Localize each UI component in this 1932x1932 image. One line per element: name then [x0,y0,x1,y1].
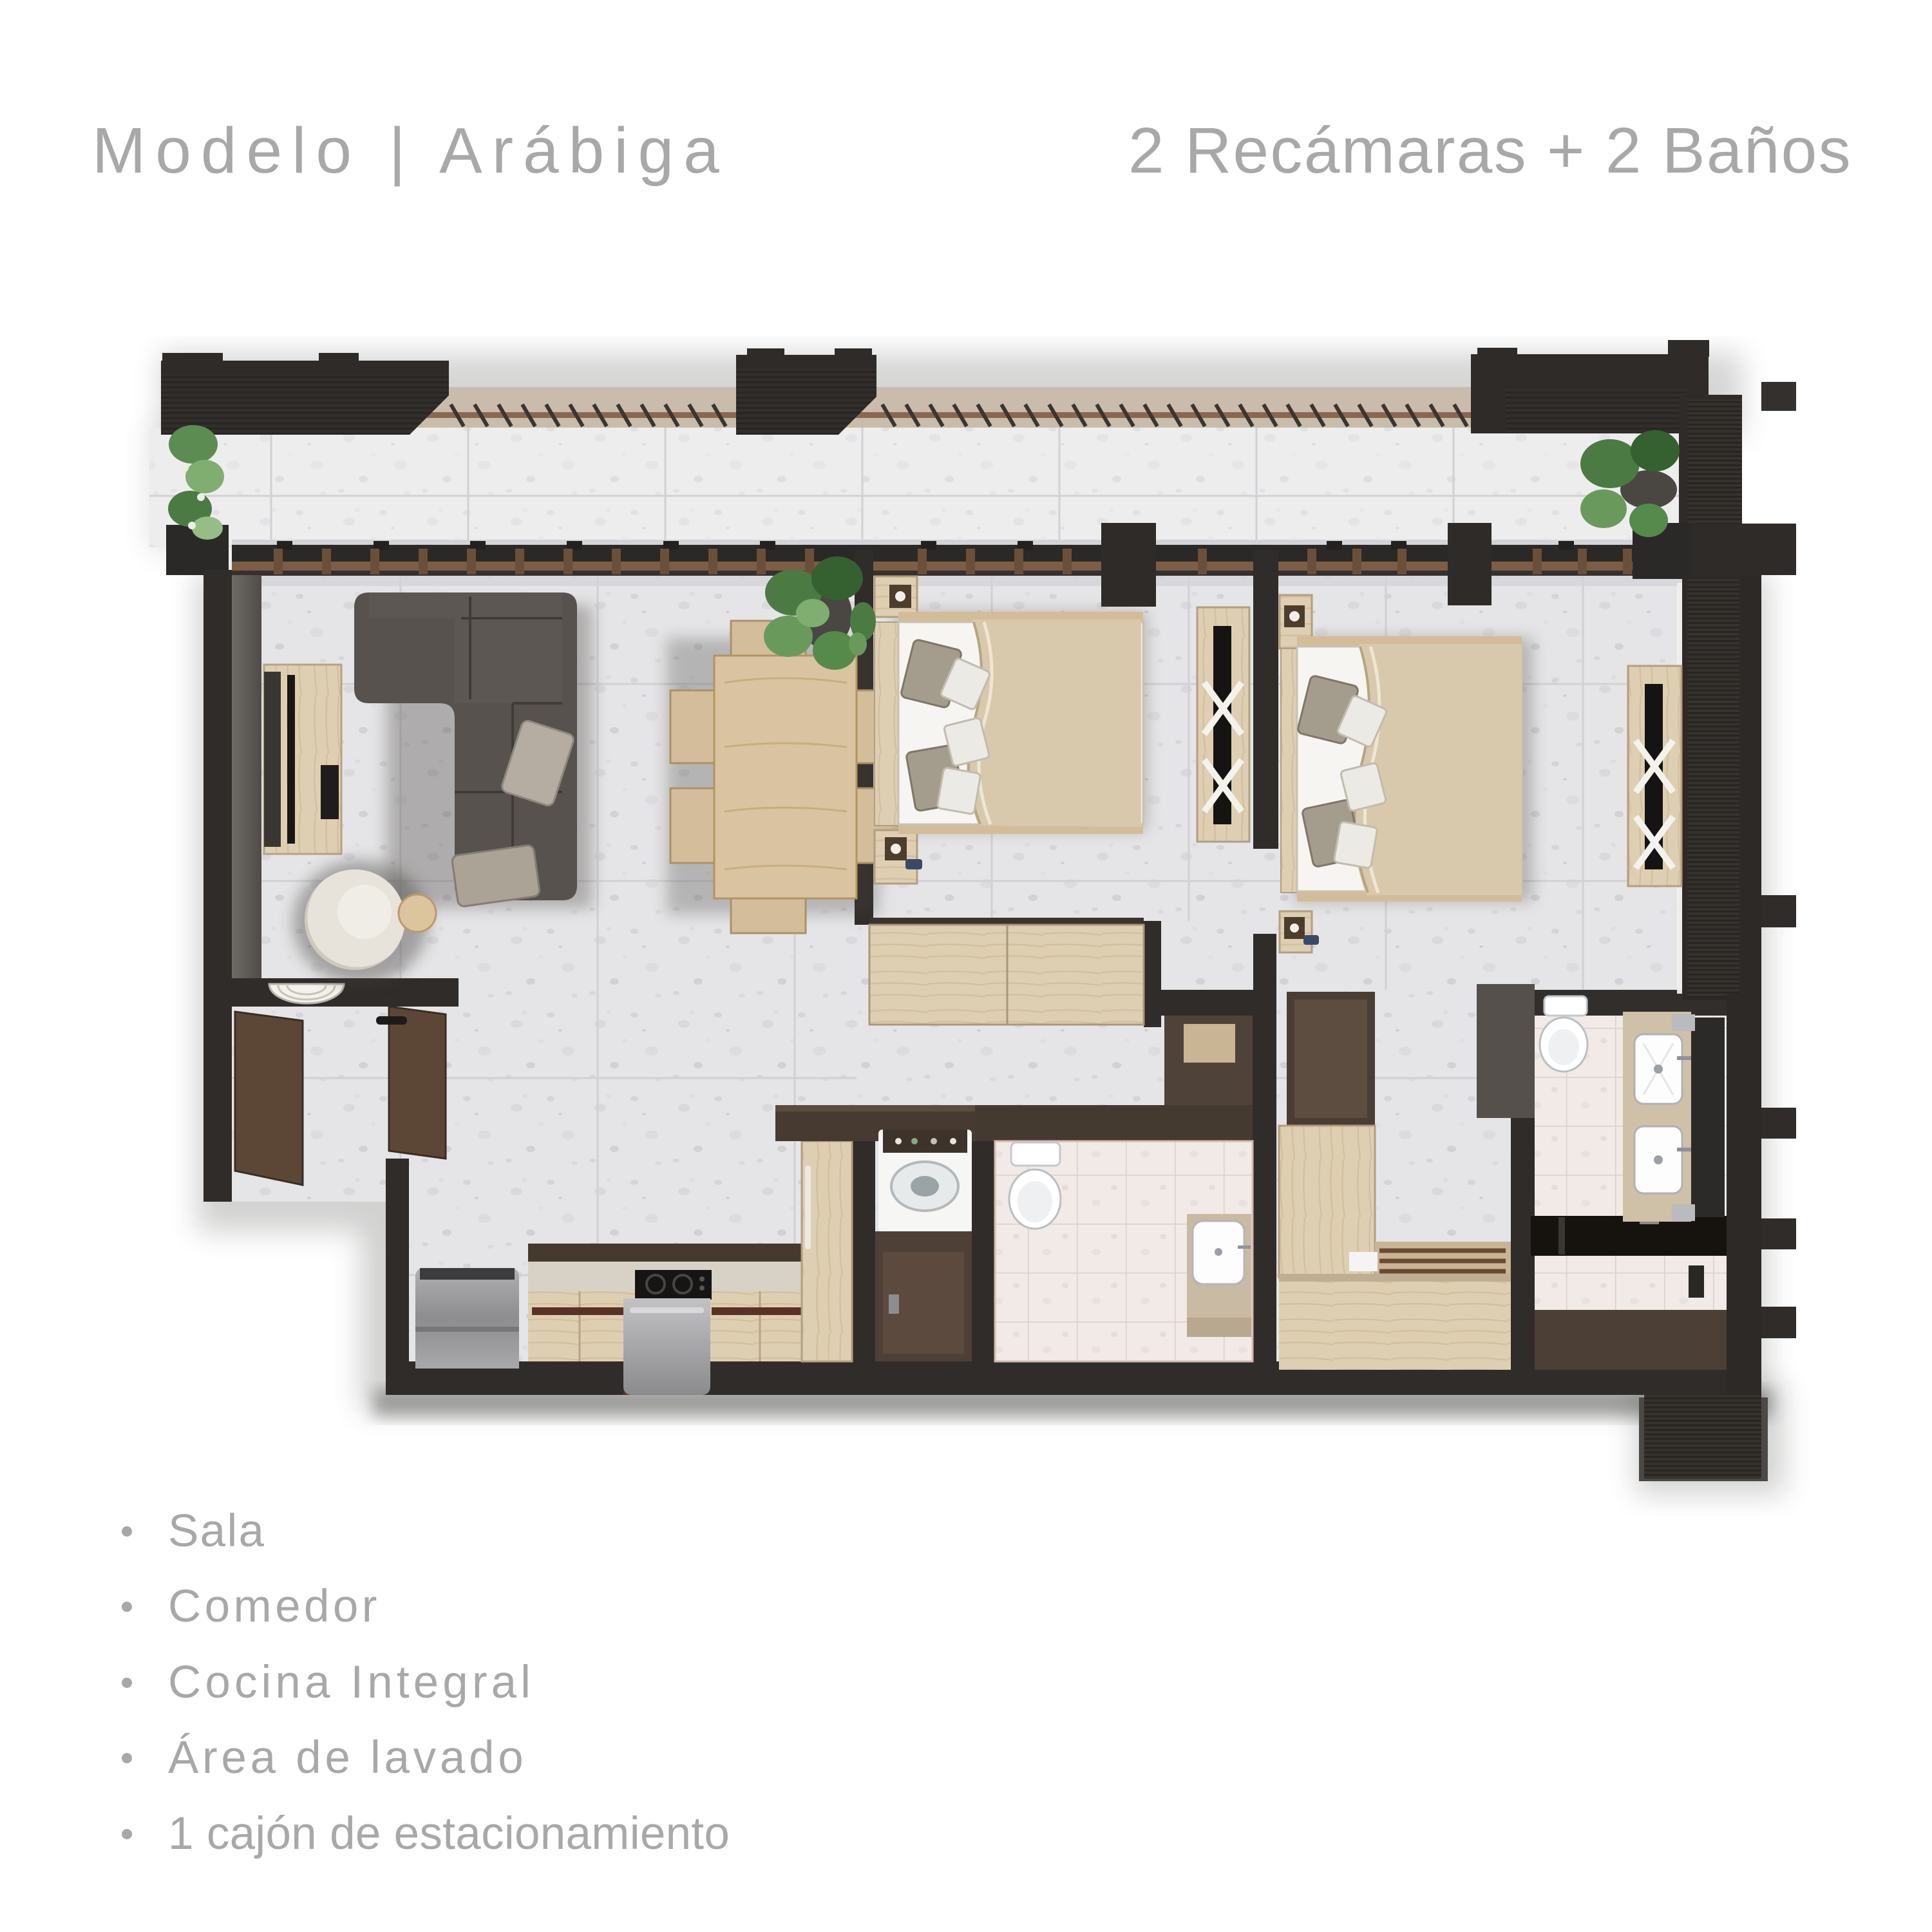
svg-text:Modelo | Arábiga: Modelo | Arábiga [92,115,729,187]
svg-text:2 Recámaras + 2 Baños: 2 Recámaras + 2 Baños [1128,115,1852,187]
svg-text:Comedor: Comedor [168,1581,381,1632]
svg-text:Área de lavado: Área de lavado [168,1732,527,1783]
svg-text:Sala: Sala [168,1506,265,1557]
svg-text:Cocina Integral: Cocina Integral [168,1657,535,1708]
svg-text:1 cajón de estacionamiento: 1 cajón de estacionamiento [168,1808,730,1859]
